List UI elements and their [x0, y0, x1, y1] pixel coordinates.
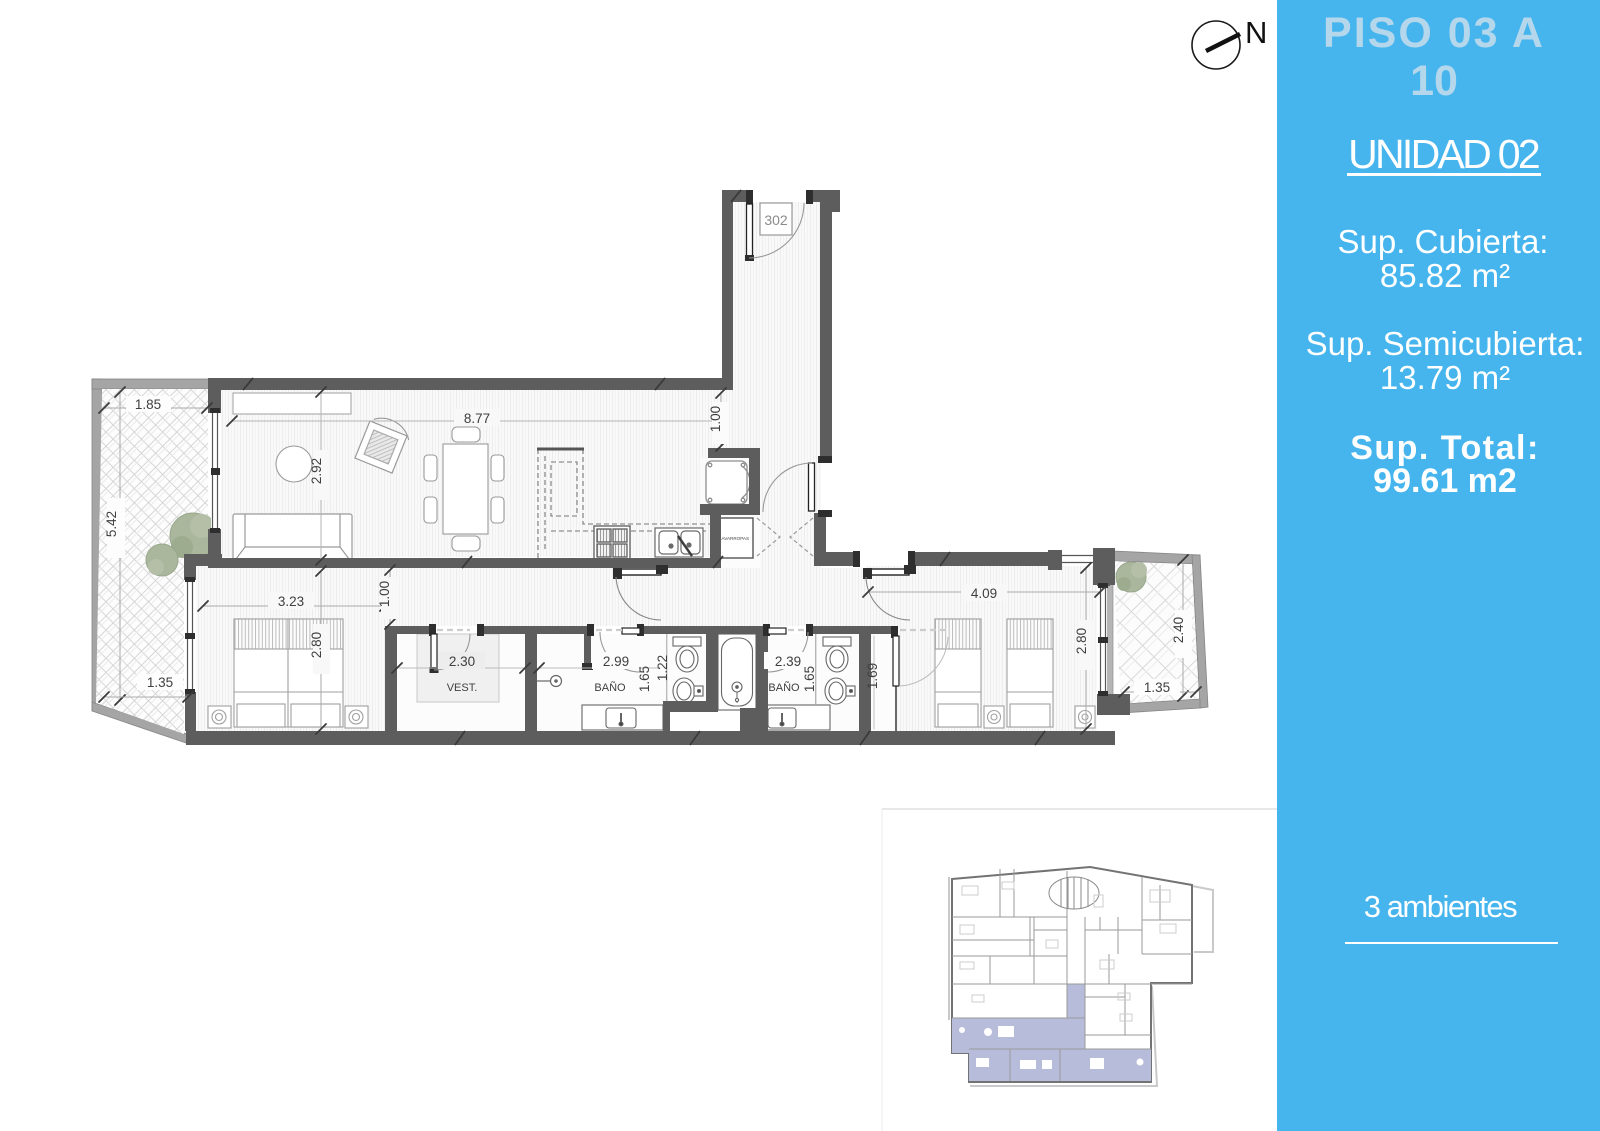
svg-text:1.35: 1.35 [147, 675, 173, 690]
svg-text:5.42: 5.42 [104, 511, 119, 537]
svg-text:1.00: 1.00 [377, 581, 392, 607]
svg-text:Sup. Cubierta:: Sup. Cubierta: [1338, 223, 1549, 260]
svg-text:1.85: 1.85 [135, 397, 161, 412]
svg-text:4.09: 4.09 [971, 586, 997, 601]
svg-text:1.65: 1.65 [802, 666, 817, 692]
svg-text:1.65: 1.65 [637, 666, 652, 692]
svg-text:3 ambientes: 3 ambientes [1364, 889, 1517, 924]
svg-text:UNIDAD 02: UNIDAD 02 [1348, 131, 1539, 177]
svg-text:3.23: 3.23 [278, 594, 304, 609]
svg-text:2.39: 2.39 [775, 654, 801, 669]
svg-text:BAÑO: BAÑO [594, 681, 626, 694]
svg-text:BAÑO: BAÑO [768, 681, 800, 694]
svg-text:8.77: 8.77 [464, 411, 490, 426]
svg-text:10: 10 [1410, 57, 1458, 105]
svg-text:1.35: 1.35 [1144, 680, 1170, 695]
svg-text:2.30: 2.30 [449, 654, 475, 669]
svg-text:1.00: 1.00 [708, 406, 723, 432]
svg-text:2.80: 2.80 [1074, 628, 1089, 654]
svg-text:1.69: 1.69 [865, 663, 880, 689]
svg-text:2.99: 2.99 [603, 654, 629, 669]
svg-text:85.82 m²: 85.82 m² [1380, 257, 1510, 294]
svg-text:302: 302 [764, 212, 788, 228]
svg-text:PISO 03 A: PISO 03 A [1323, 9, 1545, 57]
svg-text:1.22: 1.22 [655, 655, 670, 681]
svg-text:13.79 m²: 13.79 m² [1380, 359, 1510, 396]
svg-text:2.80: 2.80 [309, 632, 324, 658]
svg-text:Sup. Semicubierta:: Sup. Semicubierta: [1306, 325, 1585, 362]
svg-text:LAVARROPAS: LAVARROPAS [719, 536, 749, 541]
svg-text:2.92: 2.92 [309, 458, 324, 484]
svg-text:99.61 m2: 99.61 m2 [1373, 462, 1517, 500]
svg-text:VEST.: VEST. [447, 682, 478, 694]
svg-text:2.40: 2.40 [1171, 617, 1186, 643]
svg-text:N: N [1245, 15, 1267, 50]
